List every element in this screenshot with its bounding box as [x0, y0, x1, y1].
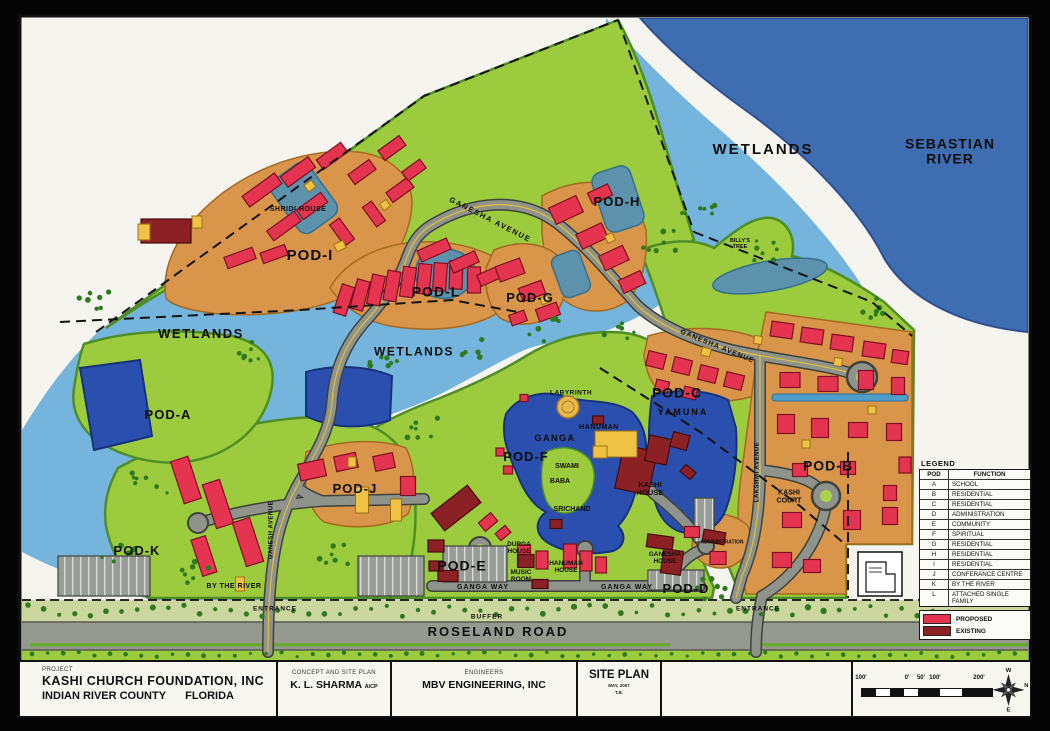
site-plan-canvas — [0, 0, 1050, 731]
title-block-sheet: SITE PLAN MAY, 2007 T.B. — [578, 662, 662, 716]
title-block-engineers: ENGINEERS MBV ENGINEERING, INC — [392, 662, 578, 716]
legend-existing-row: EXISTING — [923, 625, 1027, 637]
legend-row: KBY THE RIVER — [920, 579, 1030, 589]
scale-tick: 100' — [855, 675, 866, 681]
existing-structure-sketch — [858, 552, 902, 596]
title-block-planner: CONCEPT AND SITE PLAN K. L. SHARMA AICP — [278, 662, 392, 716]
sheet-title: SITE PLAN — [578, 669, 660, 681]
scale-tick: 50' — [917, 675, 925, 681]
existing-label: EXISTING — [956, 628, 986, 635]
labyrinth-circle — [557, 396, 579, 418]
engineers-name: MBV ENGINEERING, INC — [392, 679, 576, 691]
legend-title: LEGEND — [921, 459, 1031, 468]
legend-proposed-row: PROPOSED — [923, 613, 1027, 625]
scale-tick: 200' — [973, 675, 984, 681]
legend-row: BRESIDENTIAL — [920, 489, 1030, 499]
compass-e: E — [1007, 707, 1011, 713]
legend-row: GRESIDENTIAL — [920, 539, 1030, 549]
legend-col-pod: POD — [920, 470, 949, 479]
legend-row: HRESIDENTIAL — [920, 549, 1030, 559]
project-location: INDIAN RIVER COUNTY FLORIDA — [42, 690, 252, 702]
sheet-date: MAY, 2007 — [578, 683, 660, 688]
pod-b-canal — [772, 394, 908, 401]
engineers-label: ENGINEERS — [392, 670, 576, 676]
project-label: PROJECT — [42, 667, 276, 673]
legend-table: POD FUNCTION ASCHOOLBRESIDENTIALCRESIDEN… — [919, 469, 1031, 607]
proposed-label: PROPOSED — [956, 616, 992, 623]
scale-bar-segments — [861, 688, 993, 697]
title-block-scale: 100'0'50'100'200' W N E — [853, 662, 1030, 716]
concept-label: CONCEPT AND SITE PLAN — [278, 670, 390, 676]
legend-row: DADMINISTRATION — [920, 509, 1030, 519]
sheet-note: T.B. — [578, 690, 660, 695]
compass-rose: W N E S — [987, 663, 1030, 715]
compass-w: W — [1006, 668, 1012, 674]
legend-col-function: FUNCTION — [949, 470, 1030, 479]
legend-row: CRESIDENTIAL — [920, 499, 1030, 509]
title-block-project: PROJECT KASHI CHURCH FOUNDATION, INC IND… — [20, 662, 278, 716]
scale-tick: 100' — [929, 675, 940, 681]
legend-row: ASCHOOL — [920, 479, 1030, 489]
project-county: INDIAN RIVER COUNTY — [42, 690, 166, 702]
compass-n: N — [1024, 683, 1028, 689]
legend-table-rows: ASCHOOLBRESIDENTIALCRESIDENTIALDADMINIST… — [920, 479, 1030, 606]
proposed-color-swatch — [923, 614, 951, 624]
scale-tick: 0' — [905, 675, 910, 681]
legend-row: FSPIRITUAL — [920, 529, 1030, 539]
legend-row: LATTACHED SINGLE FAMILY — [920, 589, 1030, 606]
legend-row: IRESIDENTIAL — [920, 559, 1030, 569]
legend-panel: LEGEND POD FUNCTION ASCHOOLBRESIDENTIALC… — [919, 459, 1031, 640]
project-state: FLORIDA — [185, 690, 234, 702]
legend-row: ECOMMUNITY — [920, 519, 1030, 529]
planner-credential: AICP — [365, 684, 378, 690]
project-name: KASHI CHURCH FOUNDATION, INC — [42, 674, 276, 688]
existing-color-swatch — [923, 626, 951, 636]
scale-bar: 100'0'50'100'200' — [861, 675, 979, 707]
site-plan-page: WETLANDSSEBASTIAN RIVERSHRIDI HOUSEPOD-I… — [0, 0, 1050, 731]
legend-swatches: PROPOSED EXISTING — [919, 610, 1031, 640]
legend-row: JCONFERANCE CENTRE — [920, 569, 1030, 579]
title-block: PROJECT KASHI CHURCH FOUNDATION, INC IND… — [20, 660, 1030, 716]
legend-header: POD FUNCTION — [920, 470, 1030, 479]
roseland-road-band — [22, 600, 1028, 660]
title-block-spacer — [662, 662, 853, 716]
planner-name: K. L. SHARMA AICP — [278, 679, 390, 691]
